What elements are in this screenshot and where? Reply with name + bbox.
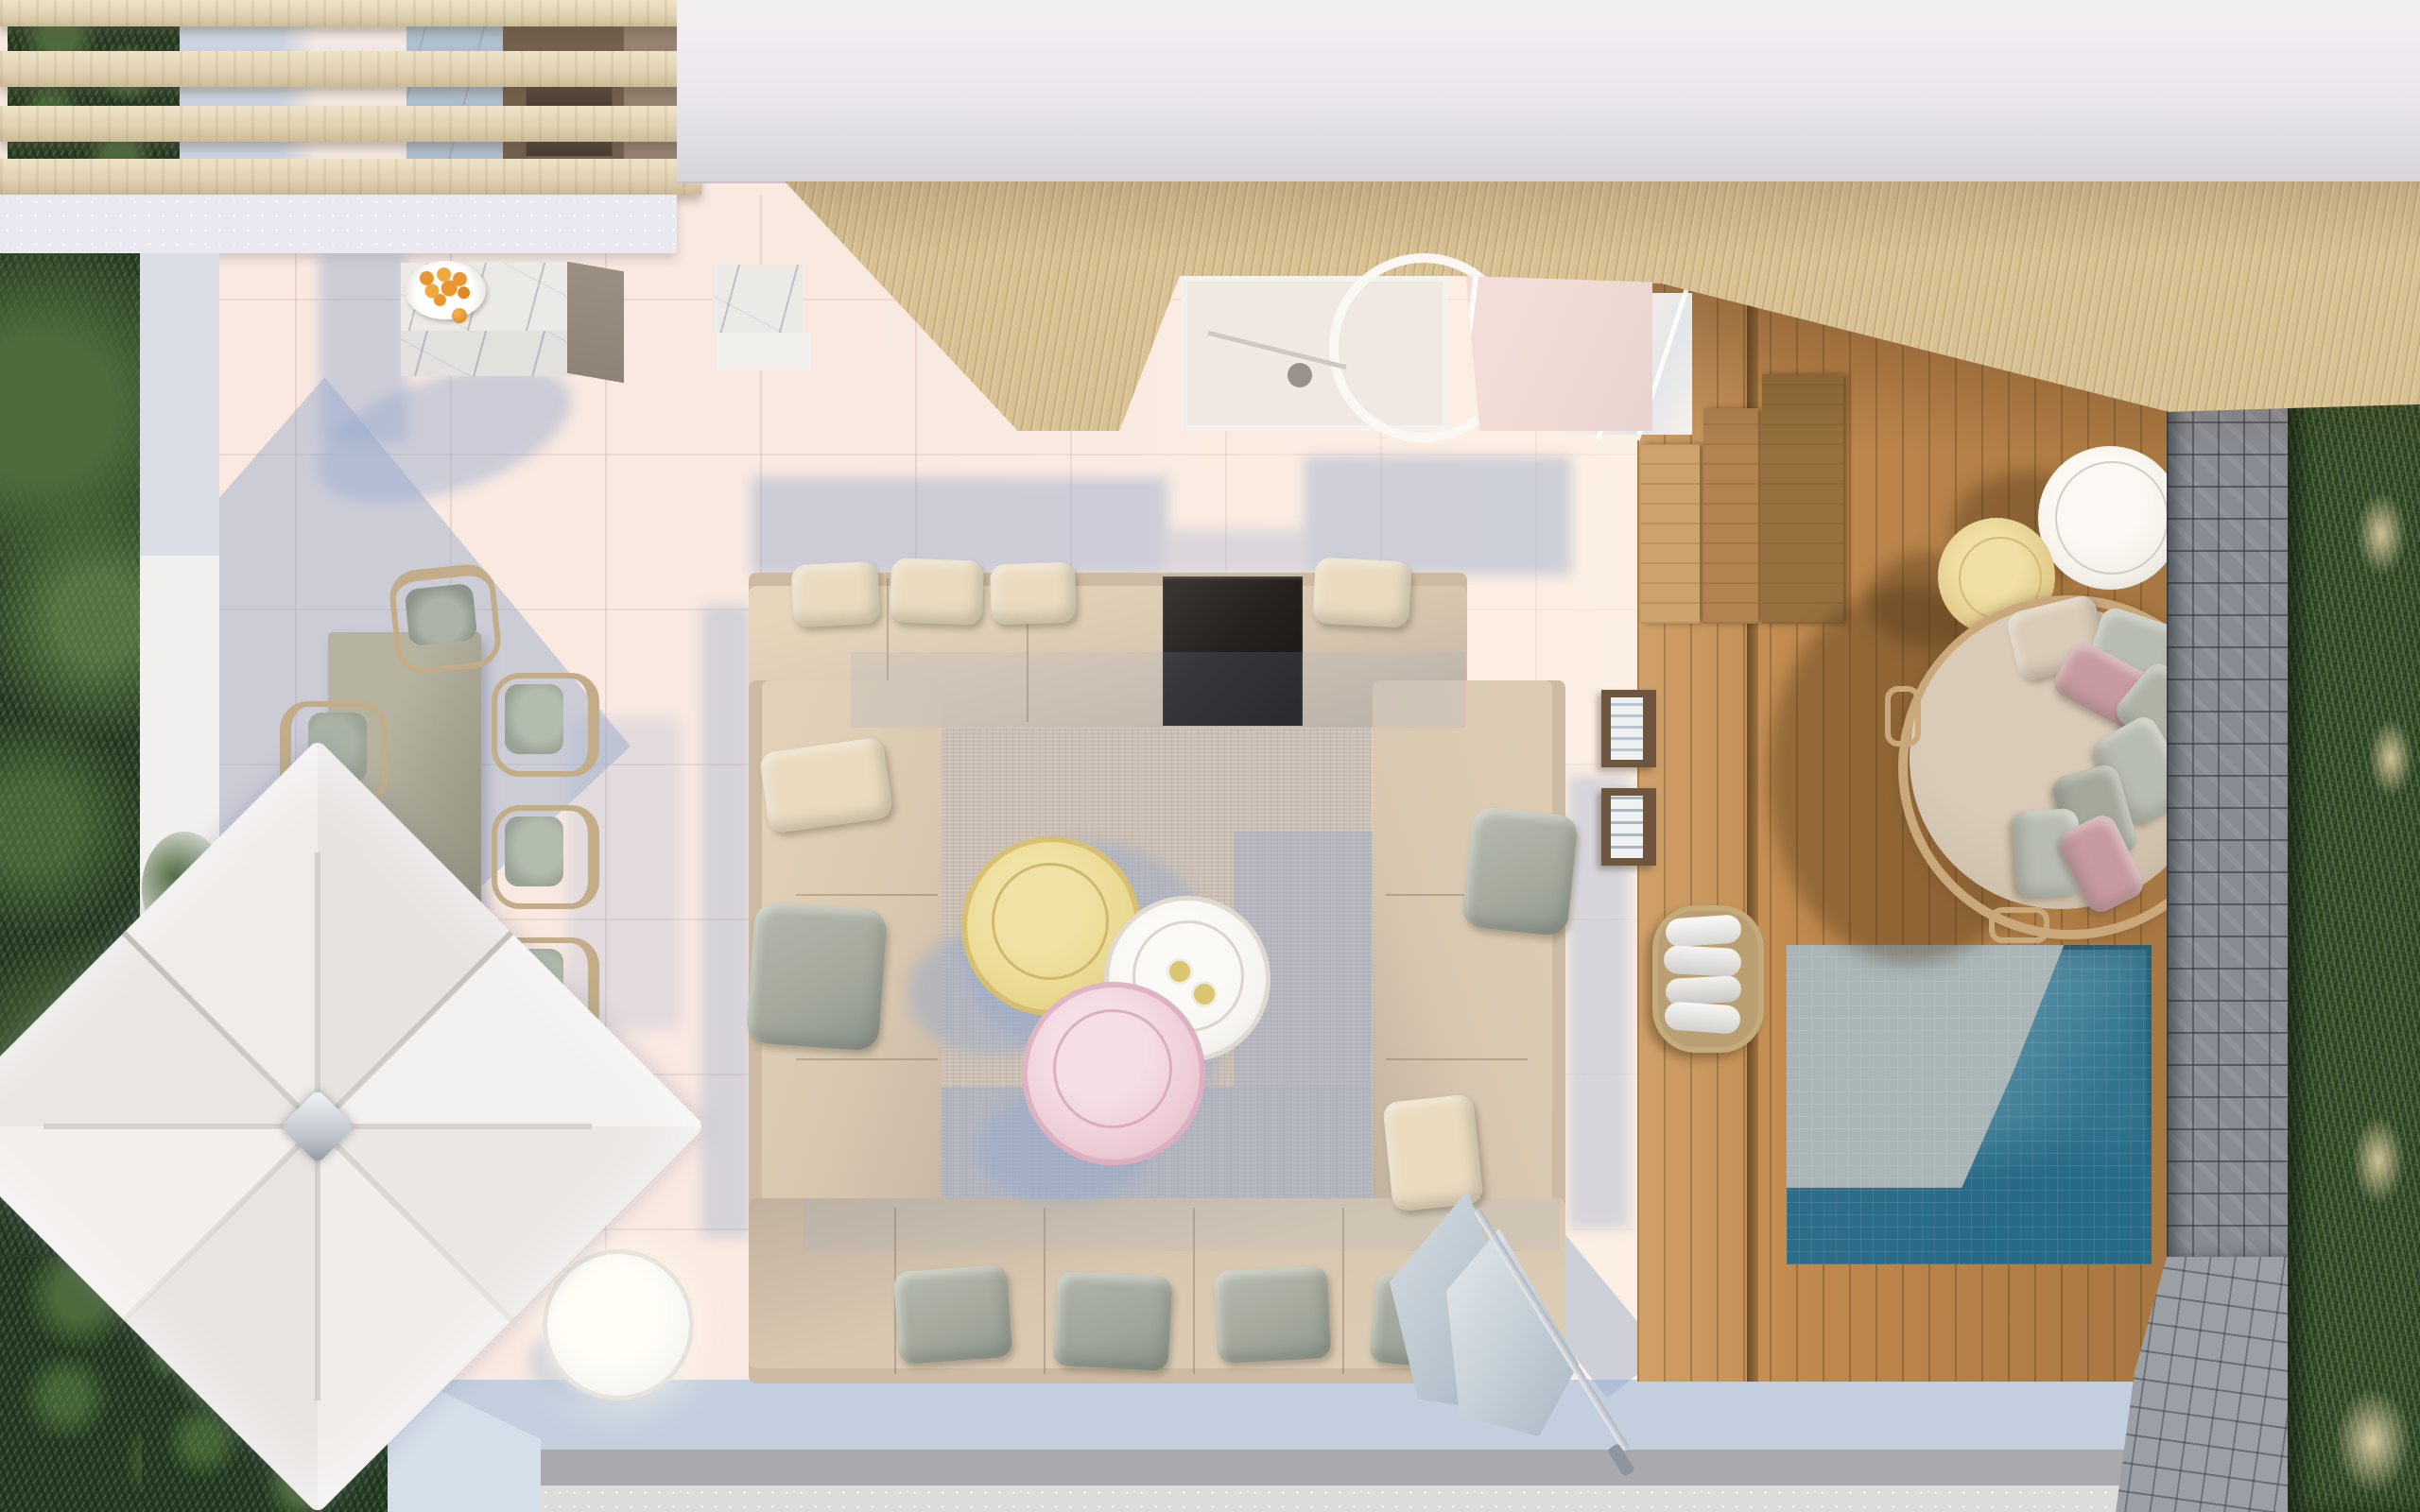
marble-column-top (713, 265, 804, 333)
sofa-pillow-sage (1214, 1265, 1332, 1364)
pergola-slat (0, 0, 701, 26)
book-ledge (1601, 690, 1656, 767)
table-plate (1053, 1009, 1172, 1128)
rolled-towel (1665, 914, 1742, 948)
towel-basket (1652, 905, 1764, 1053)
sofa-seam (796, 894, 938, 896)
pool-tile-grid (1787, 945, 2152, 1264)
sofa-pillow-cream (990, 561, 1077, 625)
pole-tip (1607, 1443, 1635, 1477)
sofa-pillow-sage-drape (746, 901, 888, 1051)
daybed-handle (1885, 686, 1921, 747)
sofa-pillow-cream (1312, 557, 1412, 627)
pergola-slat (0, 51, 701, 87)
marble-column-front (717, 333, 811, 370)
roof-slab (677, 0, 2420, 183)
stone-wall (2167, 359, 2291, 1259)
drink-glass (1167, 958, 1193, 985)
sofa-pillow-sage (1461, 805, 1580, 936)
grass-plume (2335, 1389, 2411, 1493)
dining-chair-head (388, 561, 504, 676)
chair-cushion (505, 816, 563, 886)
drink-glass (1191, 981, 1218, 1007)
planter-wall-shadow (140, 253, 219, 556)
sofa-back-shadow-mid (1168, 529, 1305, 576)
pergola-slat (0, 159, 701, 195)
rolled-towel (1663, 945, 1741, 977)
plunge-pool (1787, 945, 2152, 1264)
sofa-seam (796, 1058, 938, 1060)
daybed-handle (1989, 907, 2049, 943)
dining-chair (492, 805, 599, 909)
kitchen-island-side (567, 262, 624, 384)
table-plate (992, 863, 1109, 980)
chair-cushion (405, 583, 478, 646)
sofa-pillow-sage (1052, 1271, 1172, 1371)
sofa-pillow-cream (790, 561, 880, 628)
dining-chair (492, 673, 599, 777)
sofa-pillow-sage (893, 1264, 1013, 1365)
shower-fixture (1288, 363, 1312, 387)
rolled-towel (1665, 975, 1741, 1005)
pouf-white (2038, 446, 2182, 590)
ornamental-grass (2288, 283, 2420, 1512)
pergola-slat (0, 106, 701, 142)
bench-step (1641, 444, 1700, 624)
stray-orange (452, 308, 467, 323)
chair-cushion (505, 684, 563, 754)
grass-plume (2356, 491, 2407, 576)
bathroom-skylight (1182, 276, 1448, 431)
rolled-towel (1664, 1001, 1741, 1035)
sofa-shade-tint (851, 652, 1465, 728)
facade-beam (0, 195, 677, 253)
oranges (412, 265, 478, 310)
coffee-table-pink (1022, 982, 1205, 1165)
book-ledge (1601, 788, 1656, 866)
side-table-white (543, 1249, 694, 1400)
terrace-aerial-render (0, 0, 2420, 1512)
glazed-roof-pane (1454, 276, 1652, 431)
pouf-seam (2055, 461, 2169, 575)
grass-plume (2368, 718, 2413, 798)
sofa-seam (1386, 1058, 1528, 1060)
books (1611, 697, 1643, 760)
books (1611, 796, 1643, 858)
sofa-pillow-cream (890, 558, 984, 625)
grass-plume (2352, 1115, 2405, 1206)
grab-bar (1208, 331, 1347, 369)
sofa-pillow-cream-corner (759, 736, 894, 834)
folded-parasol (1361, 1172, 1664, 1484)
sofa-side-shadow-left (701, 605, 751, 1238)
kitchen-island-front (401, 331, 575, 376)
